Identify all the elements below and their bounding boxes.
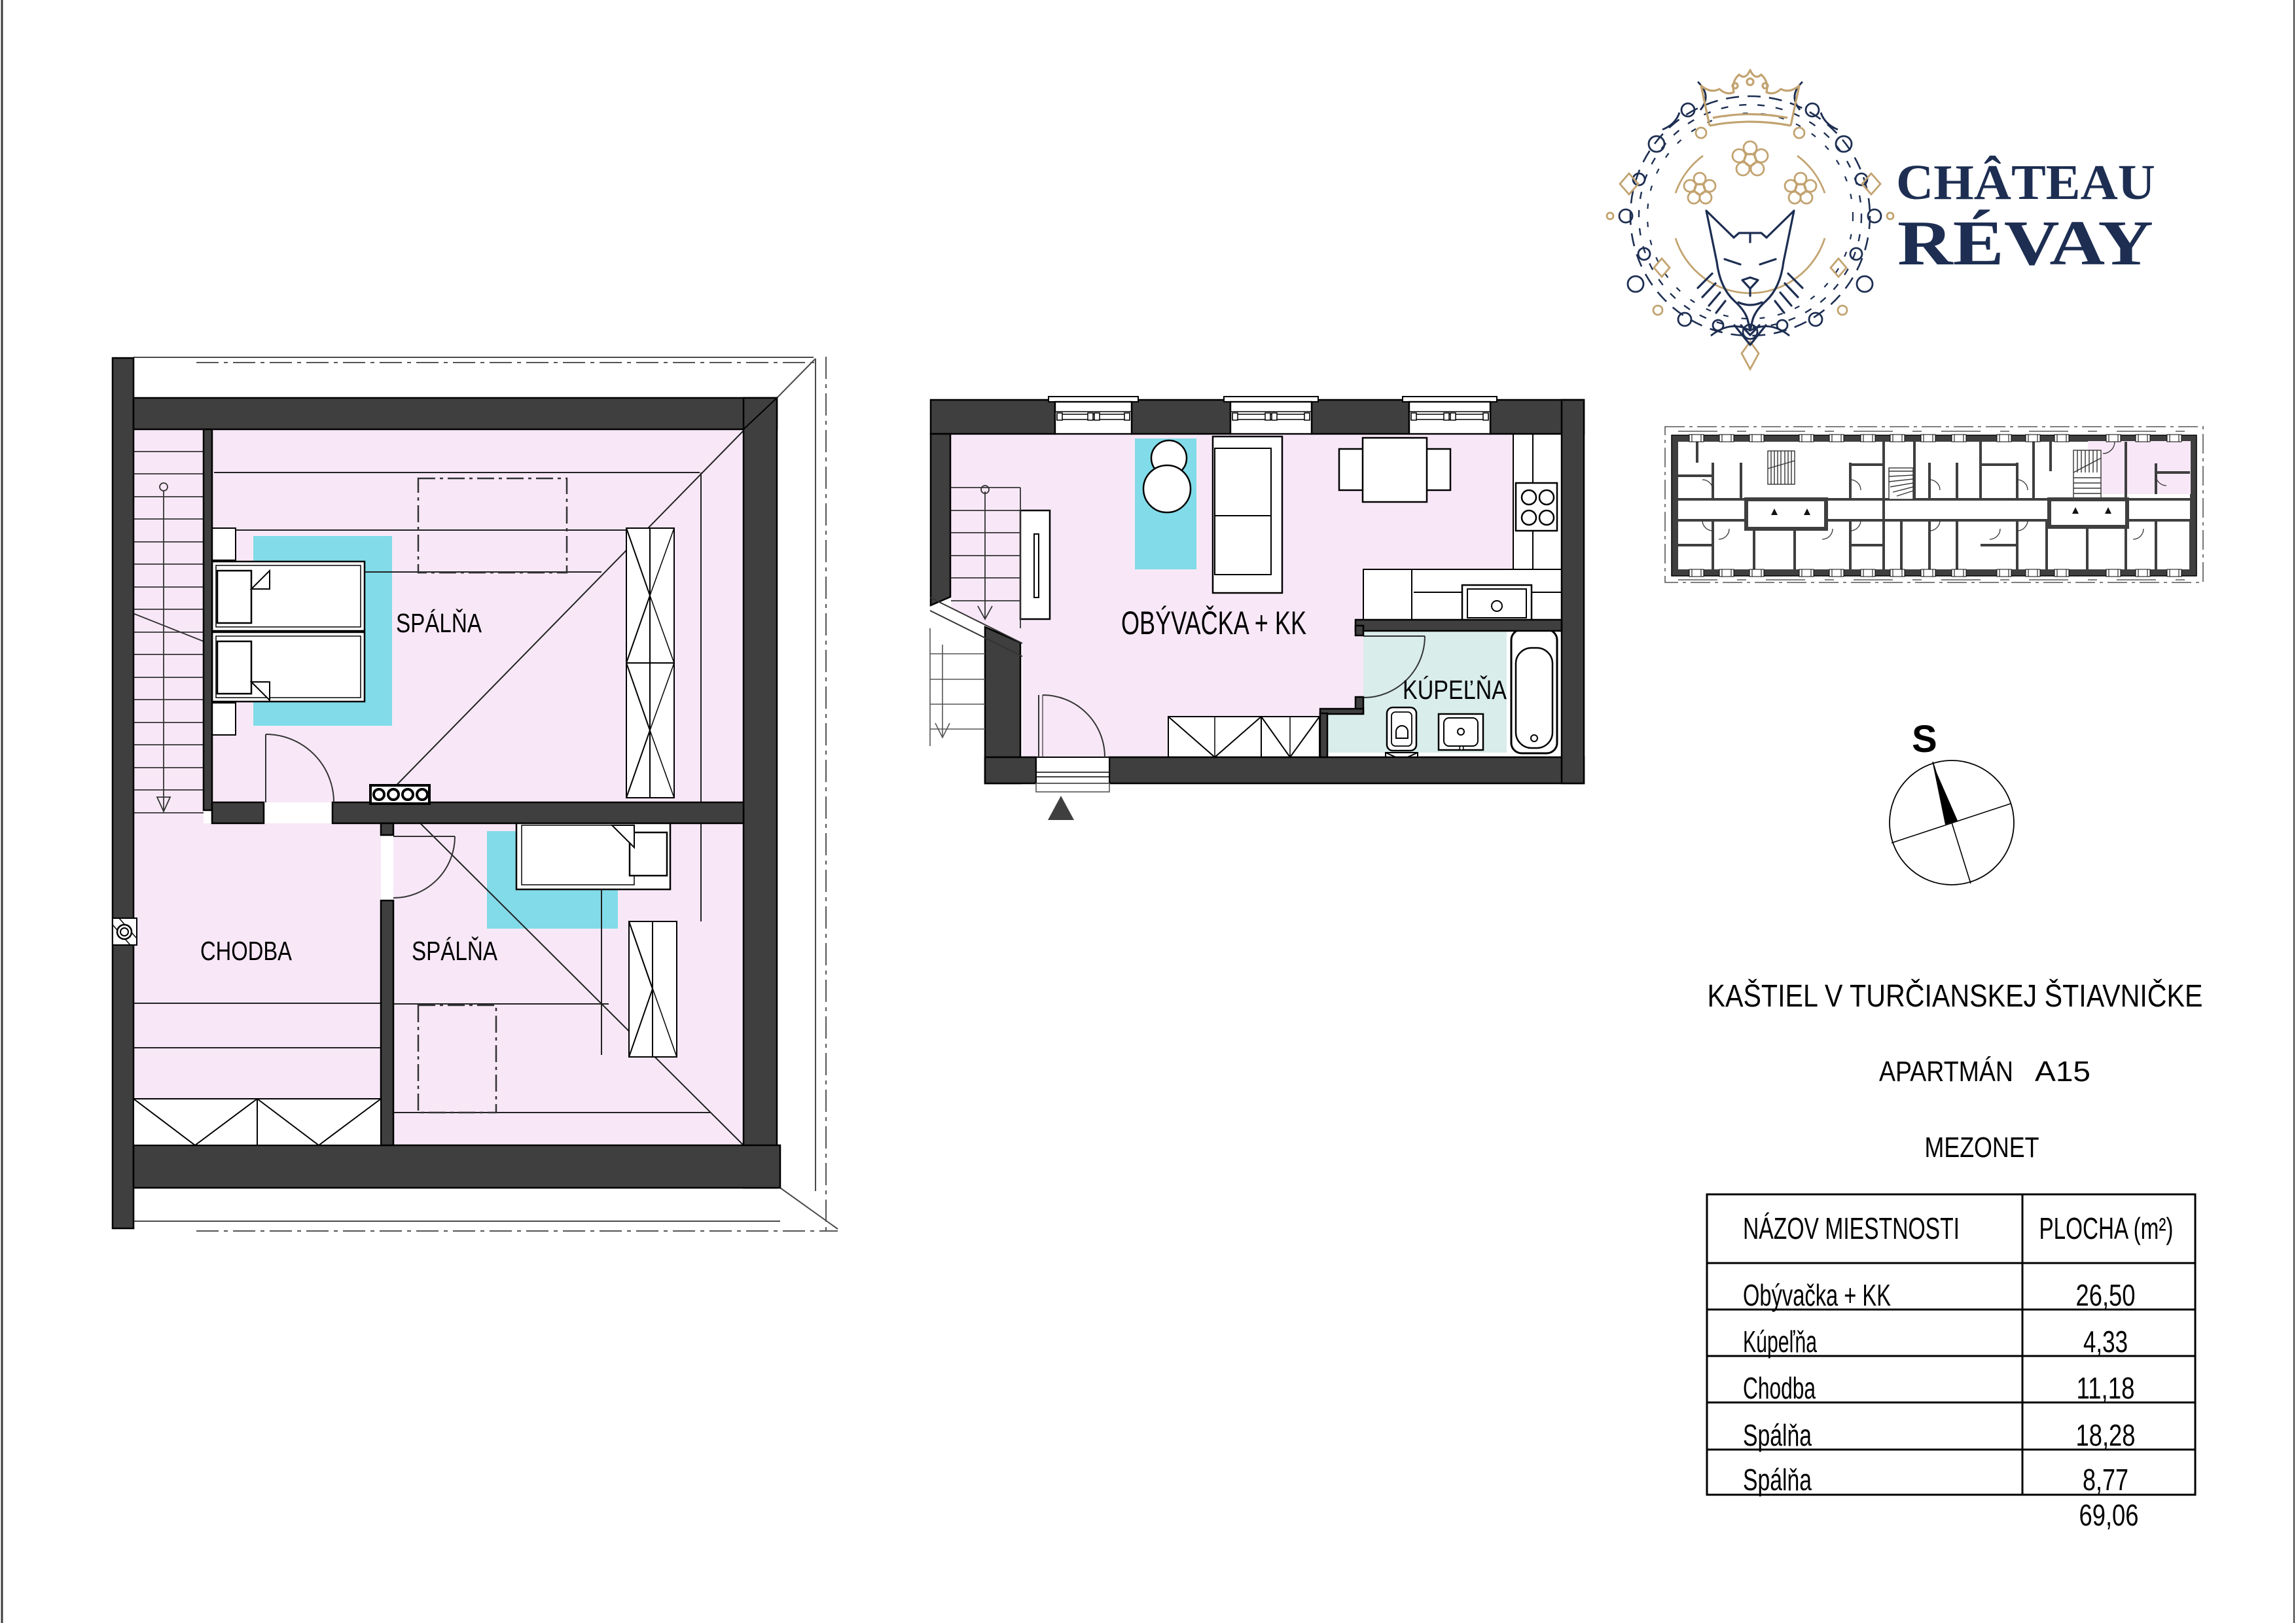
- svg-text:OBÝVAČKA + KK: OBÝVAČKA + KK: [1121, 605, 1306, 641]
- svg-text:Obývačka + KK: Obývačka + KK: [1743, 1278, 1891, 1312]
- svg-text:4,33: 4,33: [2083, 1325, 2128, 1359]
- svg-text:18,28: 18,28: [2076, 1418, 2136, 1452]
- svg-text:A15: A15: [2035, 1056, 2090, 1088]
- svg-text:S: S: [1912, 718, 1937, 760]
- svg-text:MEZONET: MEZONET: [1925, 1132, 2039, 1164]
- svg-text:8,77: 8,77: [2083, 1463, 2128, 1497]
- svg-text:11,18: 11,18: [2077, 1371, 2135, 1405]
- svg-text:RÉVAY: RÉVAY: [1897, 208, 2153, 278]
- svg-text:APARTMÁN: APARTMÁN: [1879, 1056, 2013, 1088]
- svg-text:SPÁLŇA: SPÁLŇA: [412, 936, 498, 966]
- svg-text:SPÁLŇA: SPÁLŇA: [396, 608, 482, 638]
- svg-text:PLOCHA (m²): PLOCHA (m²): [2039, 1211, 2174, 1245]
- svg-text:CHÂTEAU: CHÂTEAU: [1896, 155, 2155, 210]
- svg-text:KAŠTIEL V TURČIANSKEJ ŠTIAVNIČ: KAŠTIEL V TURČIANSKEJ ŠTIAVNIČKE: [1708, 978, 2203, 1014]
- svg-text:CHODBA: CHODBA: [200, 936, 293, 966]
- svg-text:KÚPEĽŇA: KÚPEĽŇA: [1403, 675, 1507, 705]
- svg-text:Kúpeľňa: Kúpeľňa: [1743, 1325, 1817, 1359]
- svg-text:Spálňa: Spálňa: [1743, 1418, 1812, 1452]
- svg-text:NÁZOV MIESTNOSTI: NÁZOV MIESTNOSTI: [1743, 1211, 1960, 1245]
- svg-text:69,06: 69,06: [2079, 1498, 2139, 1532]
- svg-text:26,50: 26,50: [2076, 1278, 2136, 1312]
- svg-text:Spálňa: Spálňa: [1743, 1463, 1812, 1497]
- svg-text:Chodba: Chodba: [1743, 1371, 1816, 1405]
